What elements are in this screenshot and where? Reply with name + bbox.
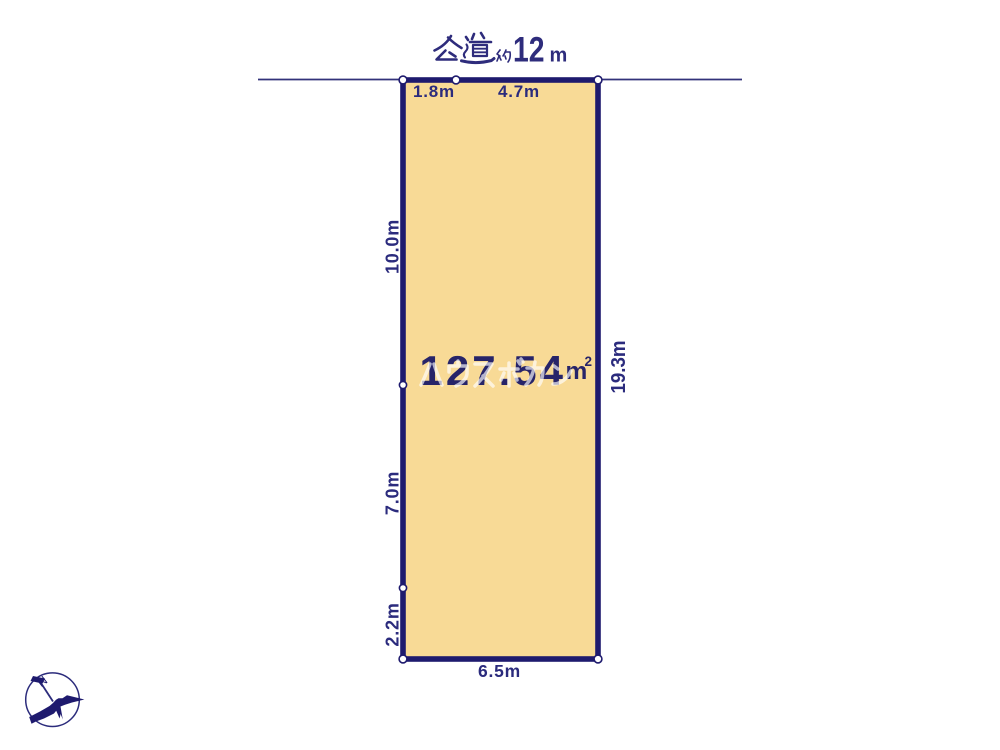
svg-text:6.5m: 6.5m [478,661,521,681]
svg-text:19.3m: 19.3m [608,341,630,394]
svg-text:1.8m: 1.8m [413,82,455,101]
svg-text:4.7m: 4.7m [498,82,540,101]
svg-text:2: 2 [585,354,593,369]
svg-text:N: N [34,673,50,690]
svg-text:12: 12 [513,31,545,70]
svg-text:2.2m: 2.2m [383,602,403,646]
svg-text:10.0m: 10.0m [383,219,403,274]
svg-text:m: m [550,45,568,67]
svg-text:7.0m: 7.0m [383,471,403,515]
